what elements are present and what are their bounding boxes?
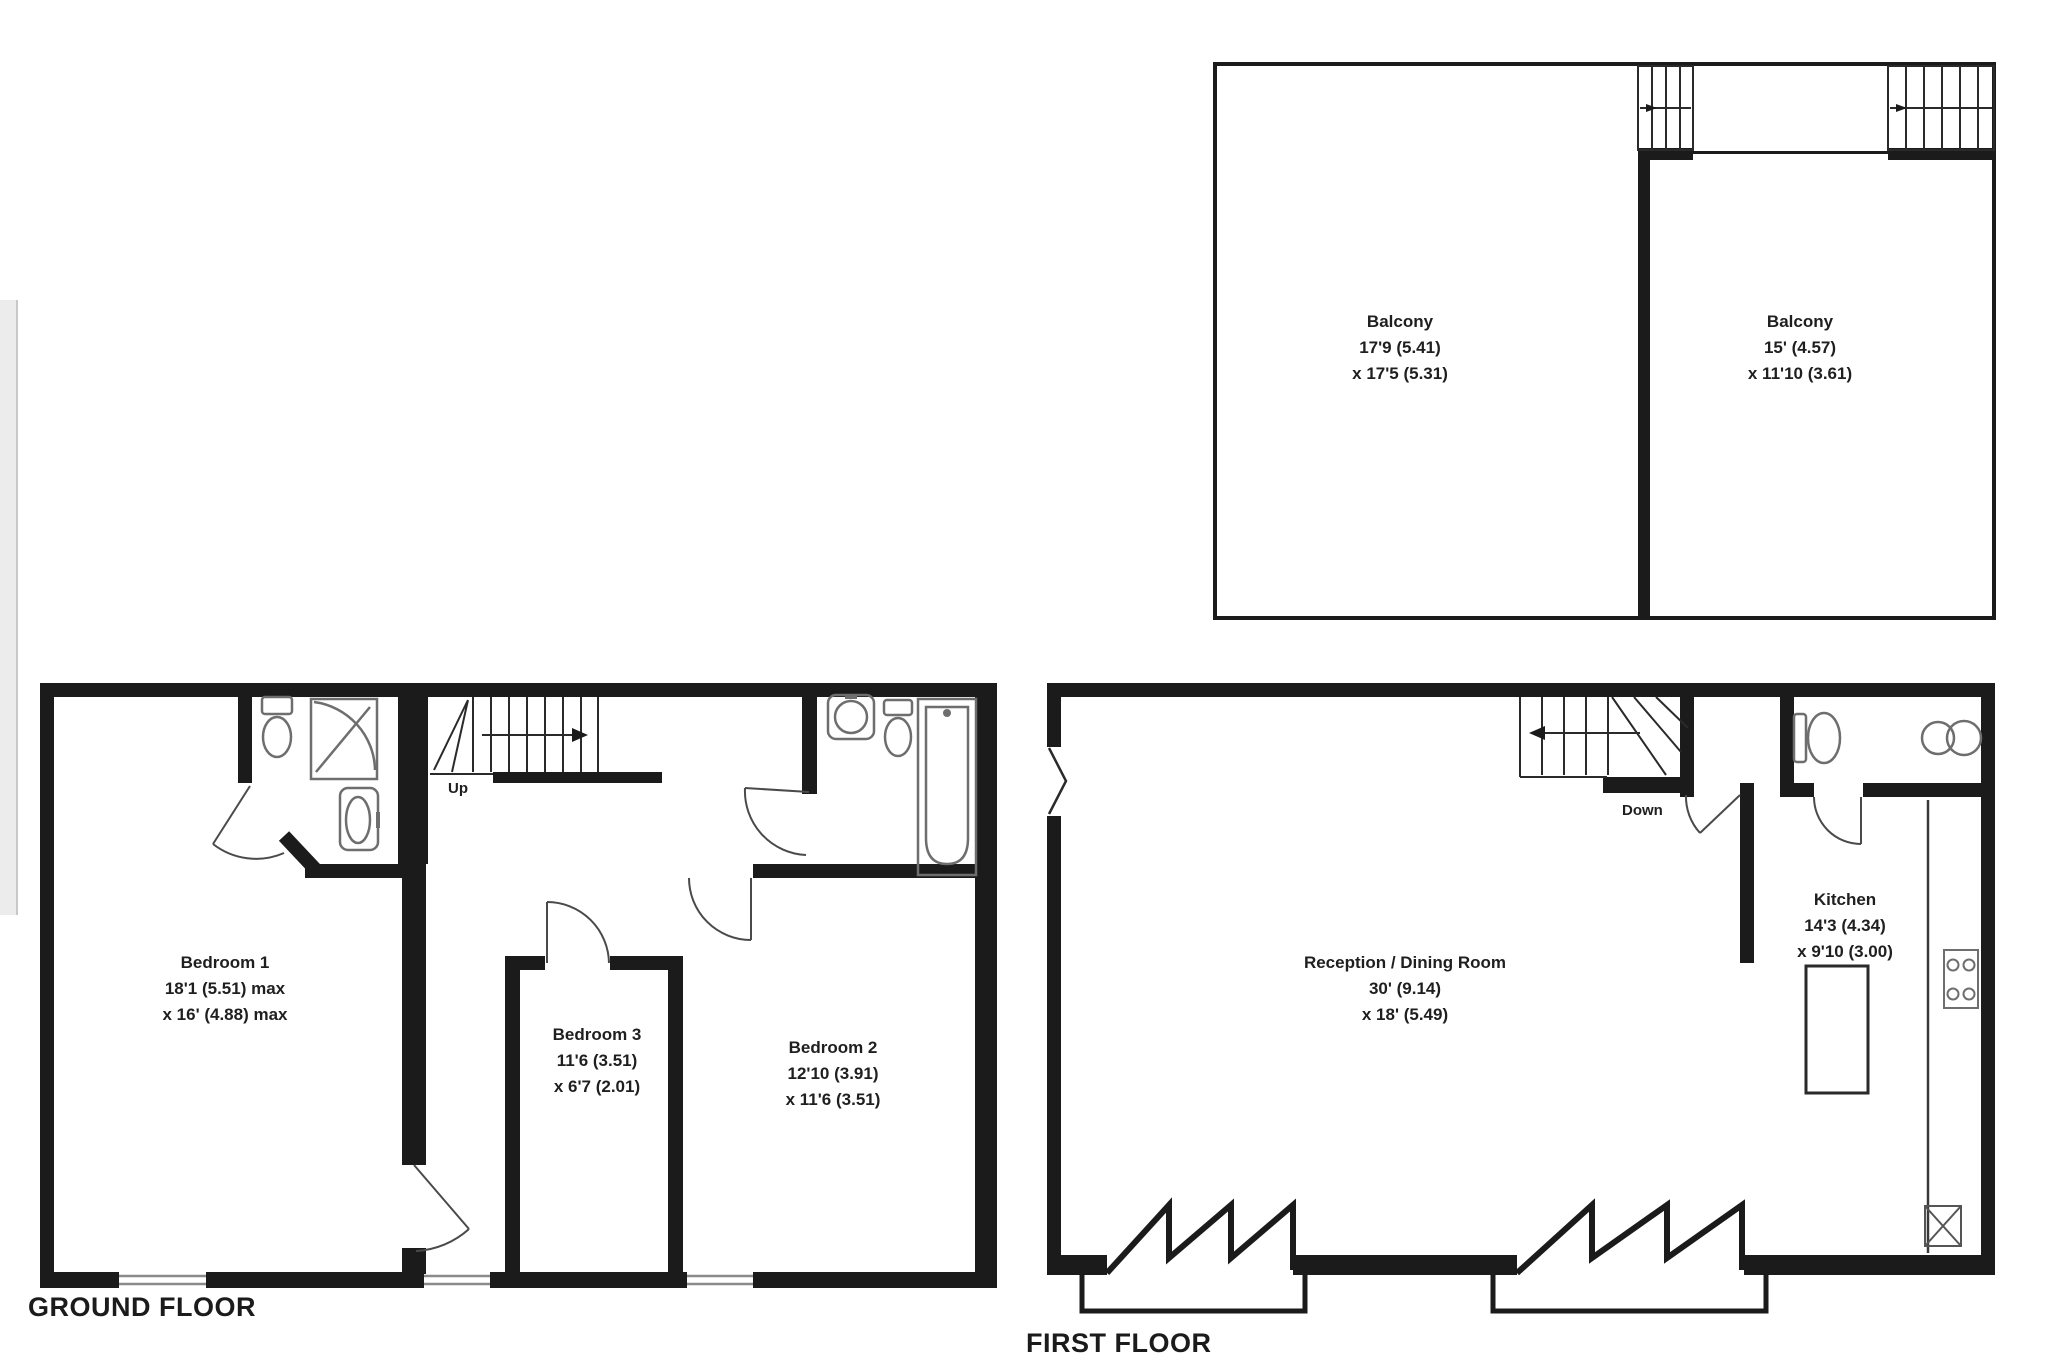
- room-label-kitchen: Kitchen 14'3 (4.34) x 9'10 (3.00): [1755, 887, 1935, 965]
- room-dim: 12'10 (3.91): [723, 1061, 943, 1087]
- room-name: Bedroom 2: [723, 1035, 943, 1061]
- room-dim: x 18' (5.49): [1255, 1002, 1555, 1028]
- room-label-reception: Reception / Dining Room 30' (9.14) x 18'…: [1255, 950, 1555, 1028]
- ensuite-door: [213, 786, 284, 859]
- room-name: Bedroom 3: [487, 1022, 707, 1048]
- sink-icon: [1922, 721, 1981, 755]
- room-name: Kitchen: [1755, 887, 1935, 913]
- toilet-icon: [884, 700, 912, 756]
- bifold-doors: [1107, 1205, 1742, 1273]
- kitchen-island: [1806, 966, 1868, 1093]
- floorplan-canvas: Balcony 17'9 (5.41) x 17'5 (5.31) Balcon…: [0, 0, 2048, 1365]
- room-dim: x 9'10 (3.00): [1755, 939, 1935, 965]
- first-floor-staircase: [1520, 697, 1688, 777]
- terrace-outline: [1082, 1275, 1766, 1311]
- room-label-bedroom2: Bedroom 2 12'10 (3.91) x 11'6 (3.51): [723, 1035, 943, 1113]
- bedroom3-door: [547, 902, 609, 963]
- room-dim: 18'1 (5.51) max: [115, 976, 335, 1002]
- room-dim: x 6'7 (2.01): [487, 1074, 707, 1100]
- bedroom2-door: [689, 878, 751, 940]
- window: [119, 1276, 753, 1284]
- sink-icon: [340, 788, 378, 850]
- room-label-bedroom3: Bedroom 3 11'6 (3.51) x 6'7 (2.01): [487, 1022, 707, 1100]
- room-dim: x 16' (4.88) max: [115, 1002, 335, 1028]
- room-name: Bedroom 1: [115, 950, 335, 976]
- first-floor-title: FIRST FLOOR: [1026, 1328, 1211, 1358]
- balcony-stairs-left-icon: [1638, 66, 1693, 150]
- room-label-bedroom1: Bedroom 1 18'1 (5.51) max x 16' (4.88) m…: [115, 950, 335, 1028]
- room-dim: x 11'6 (3.51): [723, 1087, 943, 1113]
- toilet-icon: [262, 697, 292, 757]
- ensuite-diagonal-wall: [284, 836, 316, 870]
- shower-icon: [311, 699, 377, 779]
- bedroom1-door: [414, 1165, 469, 1251]
- sink-icon: [828, 695, 874, 739]
- balcony-stairs-right-icon: [1888, 66, 1994, 150]
- ground-floor-title: GROUND FLOOR: [28, 1292, 256, 1322]
- ground-staircase: [430, 697, 662, 783]
- room-dim: 11'6 (3.51): [487, 1048, 707, 1074]
- closet-door: [1686, 795, 1740, 833]
- bathroom-door: [745, 788, 809, 855]
- room-dim: 14'3 (4.34): [1755, 913, 1935, 939]
- entrance-door-icon: [1049, 748, 1066, 814]
- hob-icon: [1944, 950, 1978, 1008]
- stairs-down-label: Down: [1622, 802, 1663, 820]
- room-dim: 30' (9.14): [1255, 976, 1555, 1002]
- plan-linework: [0, 0, 2048, 1365]
- bathtub-icon: [918, 699, 976, 875]
- room-name: Reception / Dining Room: [1255, 950, 1555, 976]
- kitchen-sink-icon: [1925, 1206, 1961, 1246]
- wc-door: [1814, 797, 1861, 844]
- toilet-icon: [1794, 713, 1840, 763]
- stairs-up-label: Up: [448, 780, 468, 798]
